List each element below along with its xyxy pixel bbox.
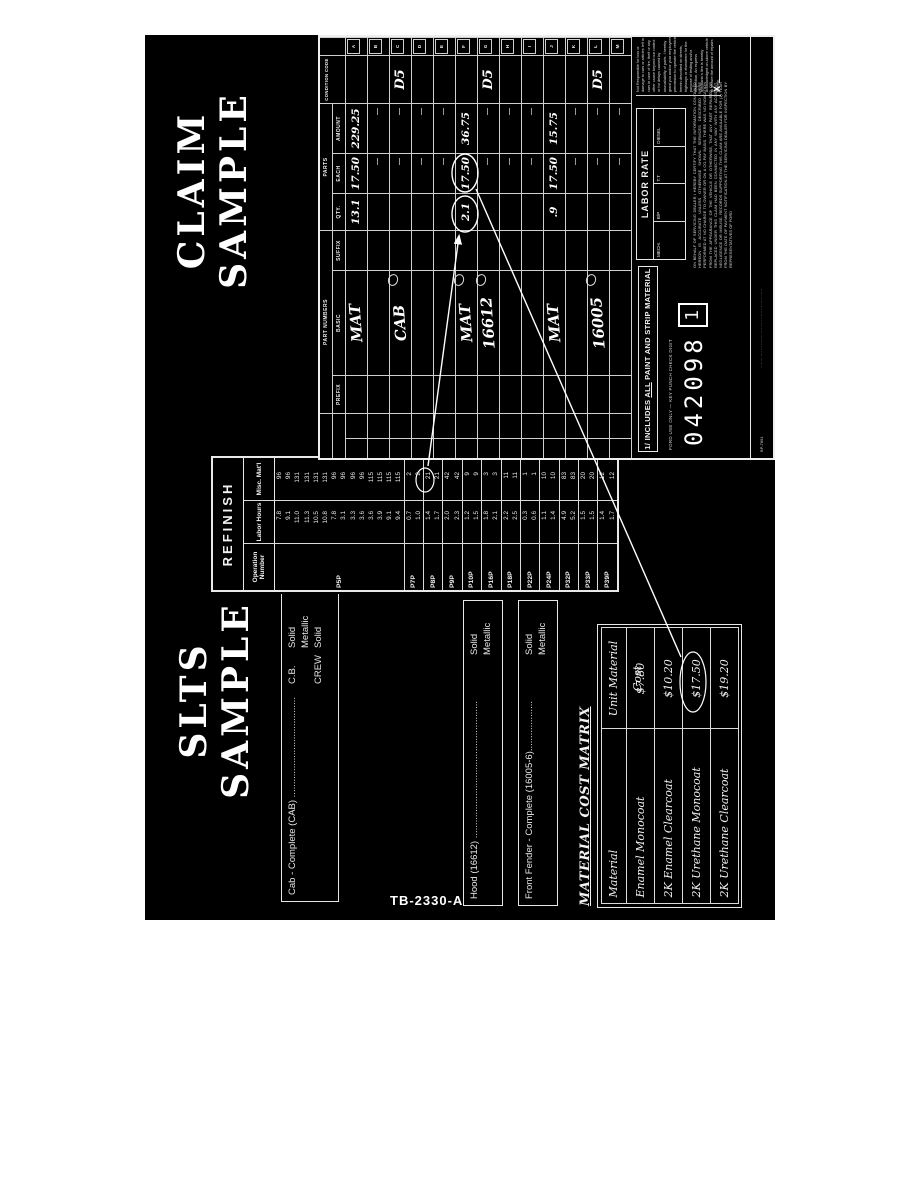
refinish-row: 2.342 bbox=[453, 458, 462, 544]
claim-cell bbox=[500, 193, 522, 230]
figure-label: TB-2330-A bbox=[390, 893, 463, 908]
refinish-row: 1.421 bbox=[424, 458, 433, 544]
refinish-row: 1.721 bbox=[433, 458, 442, 544]
claim-cell: K bbox=[566, 37, 588, 55]
claim-cell bbox=[368, 55, 390, 103]
labor-hours-value: 1.5 bbox=[588, 501, 597, 544]
slts-sample-title: SLTS SAMPLE bbox=[173, 585, 258, 815]
misc-material-value: 2 bbox=[405, 458, 414, 501]
note-finish-type: Solid bbox=[286, 600, 299, 648]
claim-cell: D5 bbox=[588, 55, 610, 103]
signature-rule bbox=[719, 45, 720, 83]
claim-cell: 229.25 bbox=[346, 103, 368, 153]
refinish-group: P22P0.310.61 bbox=[520, 458, 539, 590]
check-digit-box: 1 bbox=[678, 303, 708, 327]
claim-cell: E bbox=[434, 37, 456, 55]
refinish-row: 3.696 bbox=[358, 458, 367, 544]
handwritten-each: 17.50 bbox=[346, 154, 367, 193]
labor-rate-cell: B/P bbox=[654, 185, 686, 223]
labor-hours-value: 1.0 bbox=[414, 501, 423, 544]
operation-number: P24P bbox=[540, 544, 558, 590]
operation-number: P18P bbox=[502, 544, 520, 590]
claim-cell bbox=[522, 55, 544, 103]
refinish-row: 7.896 bbox=[275, 458, 284, 544]
slts-fender-note: Front Fender - Complete (16005-6).......… bbox=[518, 600, 558, 906]
cents-rule bbox=[377, 158, 378, 165]
claim-cell bbox=[412, 55, 434, 103]
handwritten-part-number: 16612 bbox=[474, 270, 502, 375]
claim-cell bbox=[346, 55, 368, 103]
claim-cell bbox=[390, 103, 412, 153]
claim-cell bbox=[478, 438, 500, 458]
cents-rule bbox=[421, 108, 422, 115]
misc-material-value: 10 bbox=[540, 458, 549, 501]
claim-cell bbox=[368, 375, 390, 413]
operation-number: P7P bbox=[405, 544, 423, 590]
note-finish-type: Metallic bbox=[481, 607, 494, 655]
note-qualifier bbox=[468, 655, 481, 691]
refinish-title: REFINISH bbox=[213, 458, 244, 590]
misc-material-value: 21 bbox=[433, 458, 442, 501]
operation-number: P10P bbox=[463, 544, 481, 590]
note-label bbox=[299, 684, 312, 895]
refinish-group: P7P0.721.02 bbox=[404, 458, 423, 590]
note-label bbox=[481, 691, 494, 899]
claim-cell bbox=[610, 55, 632, 103]
labor-hours-value: 2.3 bbox=[453, 501, 462, 544]
note-row: Metallic bbox=[481, 607, 494, 899]
labor-hours-value: 9.4 bbox=[394, 501, 403, 544]
refinish-row: 11.0131 bbox=[293, 458, 302, 544]
claim-cell: 15.75 bbox=[544, 103, 566, 153]
matrix-row: 2K Enamel Clearcoat$10.20 bbox=[654, 629, 682, 904]
claim-cell bbox=[478, 153, 500, 193]
claim-cell bbox=[610, 230, 632, 270]
line-letter-box: K bbox=[567, 39, 580, 54]
claim-cell bbox=[412, 230, 434, 270]
claim-cell bbox=[500, 413, 522, 438]
labor-hours-value: 1.5 bbox=[579, 501, 588, 544]
claim-cell: MAT bbox=[346, 270, 368, 375]
claim-cell bbox=[588, 375, 610, 413]
claim-cell: H bbox=[500, 37, 522, 55]
labor-hours-value: 11.3 bbox=[303, 501, 312, 544]
cents-rule bbox=[575, 158, 576, 165]
refinish-row: 1.520 bbox=[588, 458, 597, 544]
claim-cell: CAB bbox=[390, 270, 412, 375]
cents-rule bbox=[619, 108, 620, 115]
matrix-row: Enamel Monocoat$7.80 bbox=[626, 629, 654, 904]
claim-cell: 2.1 bbox=[456, 193, 478, 230]
refinish-row: 3.9115 bbox=[376, 458, 385, 544]
misc-material-value: 9 bbox=[463, 458, 472, 501]
claim-cell bbox=[478, 103, 500, 153]
matrix-row: 2K Urethane Clearcoat$19.20 bbox=[710, 629, 738, 904]
labor-hours-value: 1.1 bbox=[540, 501, 549, 544]
claim-cell bbox=[390, 413, 412, 438]
claim-cell bbox=[610, 438, 632, 458]
claim-cell bbox=[544, 230, 566, 270]
refinish-rows: 0.721.02 bbox=[405, 458, 423, 544]
material-unit-cost: $19.20 bbox=[711, 629, 738, 730]
claim-cell bbox=[368, 230, 390, 270]
claim-cell: C bbox=[390, 37, 412, 55]
cents-rule bbox=[487, 158, 488, 165]
claim-cell bbox=[412, 413, 434, 438]
labor-hours-value: 1.8 bbox=[482, 501, 491, 544]
handwritten-qty: 13.1 bbox=[346, 194, 367, 230]
refinish-row: 1.02 bbox=[414, 458, 423, 544]
cents-rule bbox=[531, 158, 532, 165]
note-row: CREWSolid bbox=[312, 600, 325, 895]
handwritten-part-number: 16005 bbox=[584, 270, 612, 375]
disclaimer-text: Not Responsible for loss or damage to ca… bbox=[636, 36, 721, 96]
line-letter-box: M bbox=[611, 39, 624, 54]
misc-material-value: 21 bbox=[424, 458, 433, 501]
claim-cell bbox=[478, 413, 500, 438]
labor-hours-value: 5.2 bbox=[569, 501, 578, 544]
matrix-col-material: Material bbox=[607, 730, 620, 904]
claim-cell bbox=[566, 153, 588, 193]
handwritten-qty: 2.1 bbox=[456, 194, 477, 230]
misc-material-value: 42 bbox=[443, 458, 452, 501]
claim-cell bbox=[390, 193, 412, 230]
line-letter-box: F bbox=[457, 39, 470, 54]
refinish-group: P5P7.8969.19611.013111.313110.513110.813… bbox=[275, 458, 404, 590]
claim-cell bbox=[390, 153, 412, 193]
refinish-group: P10P1.291.59 bbox=[462, 458, 481, 590]
note-finish-type: Metallic bbox=[299, 600, 312, 648]
claim-cell bbox=[522, 375, 544, 413]
labor-hours-value: 10.8 bbox=[321, 501, 330, 544]
cents-rule bbox=[575, 108, 576, 115]
claim-col-qty: QTY. bbox=[333, 193, 346, 230]
cents-rule bbox=[509, 158, 510, 165]
claim-col-prefix: PREFIX bbox=[333, 375, 346, 413]
misc-material-value: 115 bbox=[367, 458, 376, 501]
refinish-row: 1.412 bbox=[598, 458, 607, 544]
claim-cell bbox=[610, 103, 632, 153]
note-row: Metallic bbox=[536, 607, 549, 899]
handwritten-amount: 15.75 bbox=[544, 104, 565, 153]
claim-cell bbox=[500, 375, 522, 413]
refinish-row: 1.110 bbox=[540, 458, 549, 544]
claim-cell bbox=[412, 438, 434, 458]
claim-cell: D bbox=[412, 37, 434, 55]
claim-cell bbox=[368, 153, 390, 193]
refinish-rows: 1.832.13 bbox=[482, 458, 500, 544]
note-finish-type: Solid bbox=[523, 607, 536, 655]
refinish-table: REFINISH Operation Number Labor Hours Mi… bbox=[211, 456, 619, 592]
refinish-row: 0.72 bbox=[405, 458, 414, 544]
refinish-group: P24P1.1101.410 bbox=[539, 458, 558, 590]
slts-title-line1: SLTS bbox=[173, 585, 215, 815]
refinish-row: 2.042 bbox=[443, 458, 452, 544]
claim-cell bbox=[390, 375, 412, 413]
handwritten-amount: 36.75 bbox=[456, 104, 477, 153]
labor-hours-value: 1.7 bbox=[608, 501, 617, 544]
labor-rate-cell: T.T bbox=[654, 147, 686, 185]
labor-hours-value: 9.1 bbox=[385, 501, 394, 544]
claim-cell bbox=[478, 230, 500, 270]
misc-material-value: 115 bbox=[394, 458, 403, 501]
claim-cell bbox=[522, 153, 544, 193]
note-row: Metallic bbox=[299, 600, 312, 895]
refinish-rows: 0.310.61 bbox=[521, 458, 539, 544]
claim-footnote: 1/ INCLUDES ALL PAINT AND STRIP MATERIAL bbox=[638, 266, 658, 452]
operation-number: P5P bbox=[275, 544, 404, 590]
note-label: Front Fender - Complete (16005-6).......… bbox=[523, 691, 536, 899]
operation-number: P16P bbox=[482, 544, 500, 590]
labor-hours-value: 2.5 bbox=[511, 501, 520, 544]
labor-hours-value: 3.1 bbox=[339, 501, 348, 544]
refinish-col-misc: Misc. Mat'l bbox=[244, 458, 274, 501]
claim-col-suffix: SUFFIX bbox=[333, 230, 346, 270]
refinish-row: 0.31 bbox=[521, 458, 530, 544]
misc-material-value: 131 bbox=[293, 458, 302, 501]
footnote-prefix: 1/ INCLUDES bbox=[643, 400, 652, 450]
cents-rule bbox=[399, 158, 400, 165]
labor-hours-value: 4.9 bbox=[560, 501, 569, 544]
refinish-row: 1.29 bbox=[463, 458, 472, 544]
claim-cell: 13.1 bbox=[346, 193, 368, 230]
misc-material-value: 20 bbox=[588, 458, 597, 501]
claim-cell bbox=[412, 103, 434, 153]
footnote-underlined: ALL bbox=[643, 382, 652, 397]
claim-cell bbox=[566, 375, 588, 413]
claim-cell: F bbox=[456, 37, 478, 55]
misc-material-value: 10 bbox=[549, 458, 558, 501]
claim-cell bbox=[522, 413, 544, 438]
handwritten-condition-code: D5 bbox=[390, 56, 411, 103]
misc-material-value: 131 bbox=[321, 458, 330, 501]
claim-title-line1: CLAIM bbox=[171, 45, 213, 335]
claim-cell bbox=[500, 153, 522, 193]
claim-cell: 16005 bbox=[588, 270, 610, 375]
note-row: Front Fender - Complete (16005-6).......… bbox=[523, 607, 536, 899]
claim-cell: 36.75 bbox=[456, 103, 478, 153]
labor-hours-value: 3.6 bbox=[358, 501, 367, 544]
labor-hours-value: 1.5 bbox=[472, 501, 481, 544]
claim-header-condition-code: CONDITION CODE bbox=[320, 55, 346, 103]
note-qualifier bbox=[523, 655, 536, 691]
handwritten-part-number: CAB bbox=[386, 270, 414, 375]
labor-hours-value: 0.7 bbox=[405, 501, 414, 544]
claim-cell: A bbox=[346, 37, 368, 55]
claim-cell: D5 bbox=[390, 55, 412, 103]
claim-cell bbox=[566, 438, 588, 458]
misc-material-value: 131 bbox=[312, 458, 321, 501]
claim-cell bbox=[588, 230, 610, 270]
claim-cell bbox=[544, 55, 566, 103]
refinish-row: 3.196 bbox=[339, 458, 348, 544]
operation-number: P22P bbox=[521, 544, 539, 590]
claim-cell bbox=[610, 413, 632, 438]
line-letter-box: I bbox=[523, 39, 536, 54]
cents-rule bbox=[377, 108, 378, 115]
refinish-row: 9.196 bbox=[284, 458, 293, 544]
claim-cell bbox=[610, 193, 632, 230]
claim-cell bbox=[434, 55, 456, 103]
operation-number: P32P bbox=[560, 544, 578, 590]
refinish-group: P8P1.4211.721 bbox=[423, 458, 442, 590]
cents-rule bbox=[399, 108, 400, 115]
line-letter-box: G bbox=[479, 39, 492, 54]
claim-cell bbox=[368, 413, 390, 438]
note-qualifier bbox=[481, 655, 494, 691]
claim-cell bbox=[456, 55, 478, 103]
refinish-row: 0.61 bbox=[530, 458, 539, 544]
claim-cell bbox=[390, 230, 412, 270]
claim-cell bbox=[522, 103, 544, 153]
material-unit-cost: $7.80 bbox=[627, 629, 654, 730]
note-qualifier bbox=[299, 648, 312, 684]
note-qualifier bbox=[536, 655, 549, 691]
claim-cell bbox=[412, 193, 434, 230]
claim-form: PART NUMBERS PARTS CONDITION CODE PREFIX… bbox=[318, 35, 775, 460]
cents-rule bbox=[443, 158, 444, 165]
material-name: 2K Urethane Clearcoat bbox=[718, 730, 731, 904]
claim-cell: I bbox=[522, 37, 544, 55]
refinish-row: 1.59 bbox=[472, 458, 481, 544]
claim-cell bbox=[412, 375, 434, 413]
claim-cell bbox=[566, 413, 588, 438]
line-letter-box: H bbox=[501, 39, 514, 54]
punch-number-block: 0420981 bbox=[678, 303, 708, 446]
misc-material-value: 42 bbox=[453, 458, 462, 501]
claim-cell: M bbox=[610, 37, 632, 55]
slts-cab-note: Cab - Complete (CAB) ...................… bbox=[281, 594, 339, 902]
claim-cell bbox=[500, 270, 522, 375]
punch-number: 042098 bbox=[680, 335, 708, 446]
labor-hours-value: 3.3 bbox=[349, 501, 358, 544]
form-bottom-strip: BP-7891 ·· ····· ···· ··· ········ ···· … bbox=[750, 37, 773, 458]
misc-material-value: 96 bbox=[358, 458, 367, 501]
labor-hours-value: 1.7 bbox=[433, 501, 442, 544]
handwritten-condition-code: D5 bbox=[478, 56, 499, 103]
misc-material-value: 2 bbox=[414, 458, 423, 501]
refinish-group: P39P1.4121.712 bbox=[597, 458, 616, 590]
claim-header-part-numbers: PART NUMBERS bbox=[320, 230, 333, 413]
operation-number: P8P bbox=[424, 544, 442, 590]
labor-hours-value: 3.6 bbox=[367, 501, 376, 544]
claim-cell bbox=[412, 153, 434, 193]
claim-cell bbox=[346, 375, 368, 413]
refinish-row: 4.983 bbox=[560, 458, 569, 544]
claim-cell bbox=[412, 270, 434, 375]
claim-cell bbox=[588, 413, 610, 438]
strip-microprint: ·· ····· ···· ··· ········ ···· ····· ··… bbox=[759, 289, 764, 368]
misc-material-value: 96 bbox=[339, 458, 348, 501]
claim-cell: 17.50 bbox=[456, 153, 478, 193]
handwritten-condition-code: D5 bbox=[588, 56, 609, 103]
claim-cell bbox=[390, 438, 412, 458]
claim-cell bbox=[368, 193, 390, 230]
claim-cell bbox=[456, 438, 478, 458]
claim-cell: MAT bbox=[544, 270, 566, 375]
handwritten-part-number: MAT bbox=[540, 270, 568, 375]
claim-cell: J bbox=[544, 37, 566, 55]
misc-material-value: 115 bbox=[385, 458, 394, 501]
misc-material-value: 20 bbox=[579, 458, 588, 501]
misc-material-value: 83 bbox=[560, 458, 569, 501]
claim-cell bbox=[544, 413, 566, 438]
refinish-row: 10.5131 bbox=[312, 458, 321, 544]
handwritten-amount: 229.25 bbox=[346, 104, 367, 153]
claim-cell bbox=[456, 413, 478, 438]
claim-cell bbox=[346, 438, 368, 458]
refinish-header-row: Operation Number Labor Hours Misc. Mat'l bbox=[244, 458, 275, 590]
cents-rule bbox=[443, 108, 444, 115]
cents-rule bbox=[597, 158, 598, 165]
claim-cell bbox=[588, 103, 610, 153]
note-label: Hood (16612) ...........................… bbox=[468, 691, 481, 899]
note-finish-type: Metallic bbox=[536, 607, 549, 655]
claim-cell: .9 bbox=[544, 193, 566, 230]
misc-material-value: 96 bbox=[349, 458, 358, 501]
matrix-row: 2K Urethane Monocoat$17.50 bbox=[682, 629, 710, 904]
cents-rule bbox=[619, 158, 620, 165]
refinish-row: 9.1115 bbox=[385, 458, 394, 544]
line-letter-box: E bbox=[435, 39, 448, 54]
claim-cell bbox=[434, 153, 456, 193]
material-name: 2K Enamel Clearcoat bbox=[662, 730, 675, 904]
cents-rule bbox=[487, 108, 488, 115]
labor-rate-box: LABOR RATE MECH.B/PT.TDIESEL bbox=[636, 108, 686, 260]
operation-number: P9P bbox=[443, 544, 461, 590]
refinish-group: P16P1.832.13 bbox=[481, 458, 500, 590]
refinish-group: P33P1.5201.520 bbox=[578, 458, 597, 590]
refinish-row: 3.396 bbox=[349, 458, 358, 544]
claim-col-each: EACH bbox=[333, 153, 346, 193]
refinish-row: 1.83 bbox=[482, 458, 491, 544]
note-row: Cab - Complete (CAB) ...................… bbox=[286, 600, 299, 895]
matrix-title: MATERIAL COST MATRIX bbox=[578, 706, 593, 906]
refinish-rows: 1.1101.410 bbox=[540, 458, 558, 544]
claim-cell bbox=[588, 438, 610, 458]
labor-hours-value: 2.0 bbox=[443, 501, 452, 544]
matrix-table: MaterialUnit Material CostEnamel Monocoa… bbox=[601, 628, 739, 905]
refinish-row: 7.896 bbox=[330, 458, 339, 544]
claim-cell bbox=[500, 55, 522, 103]
labor-rate-cell: DIESEL bbox=[654, 109, 686, 147]
claim-cell bbox=[544, 375, 566, 413]
note-label bbox=[312, 684, 325, 895]
labor-hours-value: 7.8 bbox=[275, 501, 284, 544]
misc-material-value: 1 bbox=[530, 458, 539, 501]
claim-cell bbox=[368, 438, 390, 458]
labor-hours-value: 10.5 bbox=[312, 501, 321, 544]
operation-number: P33P bbox=[579, 544, 597, 590]
material-unit-cost: $10.20 bbox=[655, 629, 682, 730]
note-label bbox=[536, 691, 549, 899]
claim-cell bbox=[500, 230, 522, 270]
claim-cell: 16612 bbox=[478, 270, 500, 375]
material-cost-matrix: MaterialUnit Material CostEnamel Monocoa… bbox=[597, 624, 742, 908]
note-qualifier: CREW bbox=[312, 648, 325, 684]
misc-material-value: 96 bbox=[330, 458, 339, 501]
refinish-row: 5.283 bbox=[569, 458, 578, 544]
claim-cell bbox=[610, 375, 632, 413]
claim-cell bbox=[346, 413, 368, 438]
refinish-group: P18P2.2112.511 bbox=[501, 458, 520, 590]
line-letter-box: C bbox=[391, 39, 404, 54]
claim-header-letter-spacer bbox=[320, 37, 346, 55]
claim-cell bbox=[588, 153, 610, 193]
handwritten-each: 17.50 bbox=[544, 154, 565, 193]
claim-col-amount: AMOUNT bbox=[333, 103, 346, 153]
misc-material-value: 12 bbox=[608, 458, 617, 501]
